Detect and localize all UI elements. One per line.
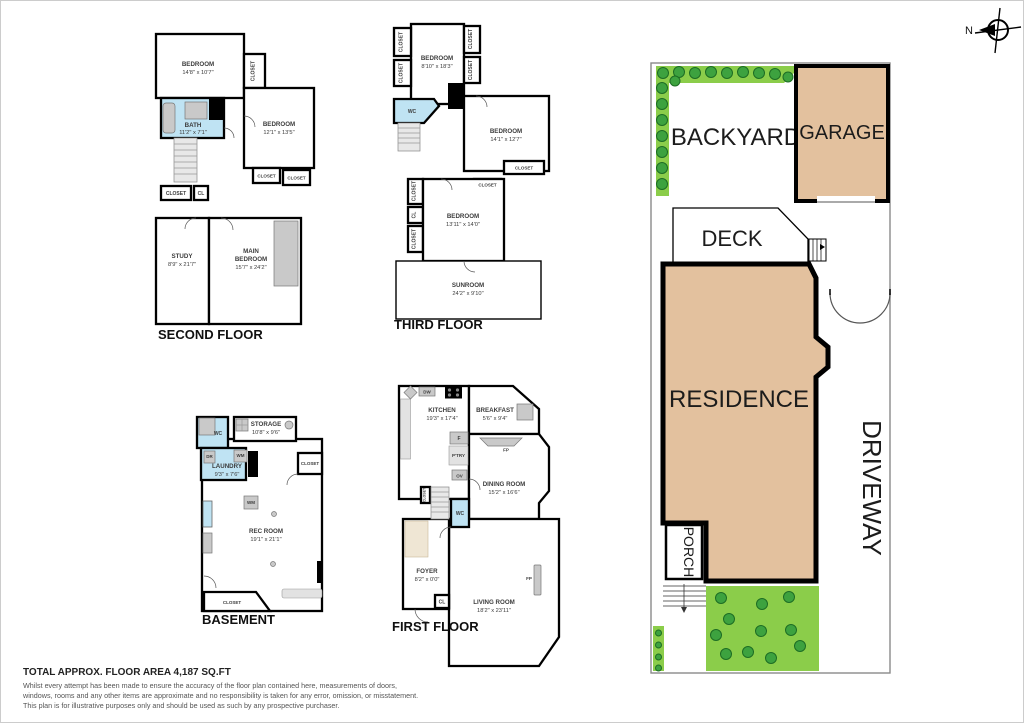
first-fp2-label: FP <box>526 576 532 581</box>
first-closet-label: CLOSET <box>423 487 427 502</box>
third-bedroom2-dims: 14'1" x 12'7" <box>490 137 521 143</box>
first-dining-dims: 15'2" x 16'6" <box>488 490 519 496</box>
disclaimer-line1: Whilst every attempt has been made to en… <box>23 681 583 691</box>
deck-stairs <box>809 239 826 261</box>
first-oven-label: OV <box>456 474 463 479</box>
second-main-bedroom-line1: MAIN <box>243 248 259 255</box>
basement-walls <box>197 417 322 611</box>
basement-rec-room-name: REC ROOM <box>249 528 283 535</box>
basement-wc-label: WC <box>214 431 223 437</box>
third-wc-label: WC <box>408 109 417 115</box>
first-living-name: LIVING ROOM <box>473 599 515 606</box>
first-fridge-label: F <box>457 436 460 442</box>
north-arrow-icon <box>975 8 1021 53</box>
third-closet-b-label: CLOSET <box>399 63 405 83</box>
floor-plan-sheet: BEDROOM 14'8" x 10'7" CLOSET BEDROOM 12'… <box>0 0 1024 723</box>
compass-north-label: N <box>965 25 973 37</box>
first-dw-label: DW <box>423 390 431 395</box>
second-stairs <box>174 138 197 182</box>
basement-storage-dims: 10'8" x 9'6" <box>252 430 280 436</box>
third-closet-a-label: CLOSET <box>399 32 405 52</box>
first-foyer-name: FOYER <box>416 568 438 575</box>
third-closet-e-label: CLOSET <box>515 166 534 171</box>
third-closet-f-label: CLOSET <box>478 183 497 188</box>
disclaimer-line3: This plan is for illustrative purposes o… <box>23 701 583 711</box>
second-bath-dims: 11'2" x 7'1" <box>179 130 207 136</box>
basement-closet1-label: CLOSET <box>301 461 320 466</box>
basement-storage-name: STORAGE <box>251 421 281 428</box>
first-pantry-label: P'TRY <box>452 453 465 458</box>
footer-disclaimer: TOTAL APPROX. FLOOR AREA 4,187 SQ.FT Whi… <box>23 667 583 711</box>
second-closet-tr-label: CLOSET <box>251 61 257 81</box>
third-bedroom3-name: BEDROOM <box>447 213 479 220</box>
third-closet-d-label: CLOSET <box>468 60 474 80</box>
third-bedroom2-name: BEDROOM <box>490 128 522 135</box>
basement-closet2-label: CLOSET <box>223 600 242 605</box>
first-living-dims: 18'2" x 23'11" <box>477 608 511 614</box>
second-study-dims: 8'9" x 21'7" <box>168 262 196 268</box>
third-floor-title: THIRD FLOOR <box>394 317 483 332</box>
third-bedroom1-name: BEDROOM <box>421 55 453 62</box>
second-mb-closet2-label: CLOSET <box>287 176 306 181</box>
compass-rose: N <box>951 3 1024 65</box>
first-kitchen-dims: 19'3" x 17'4" <box>426 416 457 422</box>
third-closet-c-label: CLOSET <box>468 29 474 49</box>
second-main-bedroom-dims: 15'7" x 24'2" <box>235 265 266 271</box>
second-bedroom2-name: BEDROOM <box>263 121 295 128</box>
porch-label: PORCH <box>681 527 697 578</box>
second-bedroom2-dims: 12'1" x 13'5" <box>263 130 294 136</box>
total-floor-area: TOTAL APPROX. FLOOR AREA 4,187 SQ.FT <box>23 667 583 678</box>
second-hall-closet-label: CLOSET <box>166 191 186 197</box>
backyard-label: BACKYARD <box>671 124 801 151</box>
basement-wm2-label: WM <box>247 500 255 505</box>
site-plan: BACKYARD GARAGE DECK RESIDENCE <box>649 41 893 681</box>
second-floor-plan: BEDROOM 14'8" x 10'7" CLOSET BEDROOM 12'… <box>141 21 346 346</box>
third-closet-g-label: CLOSET <box>412 181 418 201</box>
basement-dr-label: DR <box>206 454 213 459</box>
basement-title: BASEMENT <box>202 612 275 627</box>
first-floor-title: FIRST FLOOR <box>392 619 479 634</box>
third-sunroom-dims: 24'2" x 9'10" <box>452 291 483 297</box>
second-mb-closet1-label: CLOSET <box>257 174 276 179</box>
basement-laundry-dims: 9'3" x 7'6" <box>215 472 240 478</box>
third-bedroom1-dims: 8'10" x 18'3" <box>421 64 452 70</box>
second-bedroom1-dims: 14'8" x 10'7" <box>182 70 213 76</box>
first-breakfast-dims: 5'6" x 9'4" <box>483 416 508 422</box>
second-hall-cl-label: CL <box>198 191 205 197</box>
sidewalk-strip <box>653 626 664 671</box>
third-floor-plan: BEDROOM 8'10" x 18'3" CLOSET CLOSET CLOS… <box>386 11 566 333</box>
second-study-name: STUDY <box>172 253 194 260</box>
basement-wm1-label: WM <box>237 453 245 458</box>
first-dining-name: DINING ROOM <box>483 481 526 488</box>
front-lawn <box>706 586 819 671</box>
residence-label: RESIDENCE <box>669 386 809 413</box>
third-sunroom-name: SUNROOM <box>452 282 484 289</box>
disclaimer-line2: windows, rooms and any other items are a… <box>23 691 583 701</box>
second-floor-title: SECOND FLOOR <box>158 327 263 342</box>
first-breakfast-name: BREAKFAST <box>476 407 514 414</box>
basement-laundry-name: LAUNDRY <box>212 463 243 470</box>
third-bedroom3-dims: 13'11" x 14'0" <box>446 222 480 228</box>
first-wc-label: WC <box>456 511 465 517</box>
basement-rec-room-dims: 19'1" x 21'1" <box>250 537 281 543</box>
third-cl-label: CL <box>412 212 418 219</box>
second-bedroom1-name: BEDROOM <box>182 61 214 68</box>
first-fp1-label: FP <box>503 448 509 453</box>
first-floor-plan: DW KITCHEN 19'3" x 17'4" BREAKFAST 5'6" … <box>391 369 571 674</box>
driveway-label: DRIVEWAY <box>857 420 887 556</box>
deck-label: DECK <box>701 226 762 251</box>
garage-label: GARAGE <box>799 122 885 144</box>
second-bath-name: BATH <box>185 122 202 129</box>
third-stairs <box>398 123 420 151</box>
first-stairs <box>431 487 449 519</box>
basement-plan: WC STORAGE 10'8" x 9'6" DR WM LAUNDRY 9'… <box>194 406 354 641</box>
second-main-bedroom-line2: BEDROOM <box>235 256 267 263</box>
first-foyer-dims: 8'2" x 0'0" <box>415 577 440 583</box>
first-stove <box>445 387 462 399</box>
first-cl-label: CL <box>439 600 446 606</box>
first-kitchen-name: KITCHEN <box>428 407 456 414</box>
third-closet-h-label: CLOSET <box>412 229 418 249</box>
